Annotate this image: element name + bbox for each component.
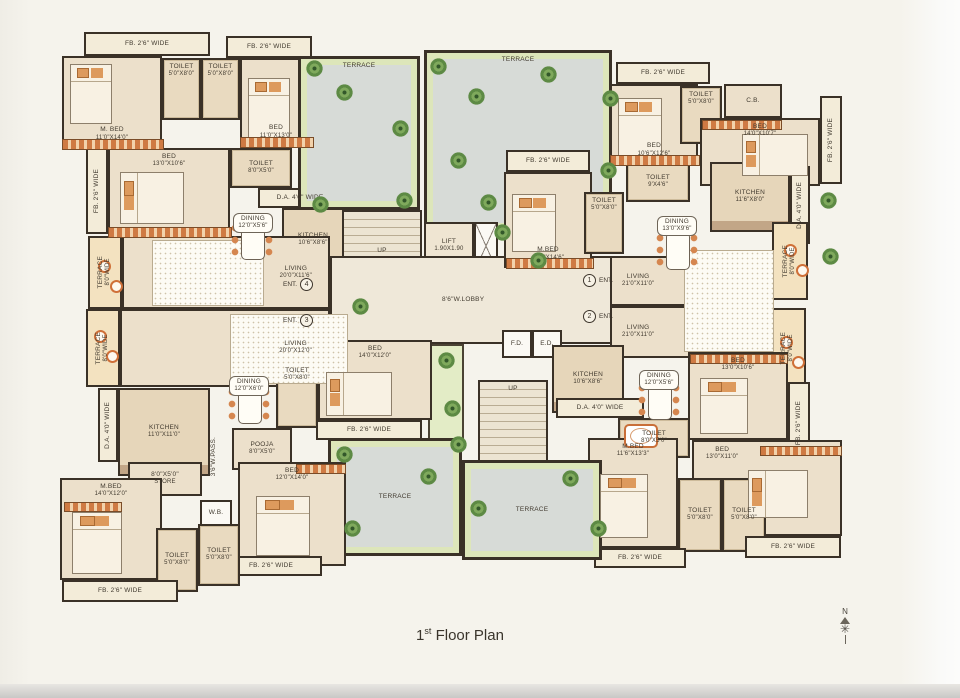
terrace-label: TERRACE bbox=[343, 62, 375, 70]
staircase: UP bbox=[478, 380, 548, 472]
terrace-side: TERRACE8'0"WIDE bbox=[86, 309, 120, 387]
paper-edge bbox=[0, 684, 960, 698]
entrance-marker: ENT.3 bbox=[283, 314, 313, 327]
bedroom-label: BED13'0"X10'6" bbox=[722, 357, 755, 373]
fb-balcony-label: FB. 2'6" WIDE bbox=[93, 169, 101, 213]
fb-balcony-label: FB. 2'6" WIDE bbox=[526, 157, 570, 165]
compass-stem bbox=[845, 635, 846, 644]
plant-icon bbox=[392, 120, 409, 137]
toilet-label: TOILET5'0"X8'0" bbox=[591, 197, 617, 213]
entrance-number: 1 bbox=[583, 274, 596, 287]
staircase-label: UP bbox=[508, 385, 517, 393]
fb-balcony: FB. 2'6" WIDE bbox=[84, 32, 210, 56]
entrance-label: ENT. bbox=[283, 317, 297, 324]
toilet-label: TOILET5'0"X8'0" bbox=[208, 63, 234, 79]
plant-icon bbox=[396, 192, 413, 209]
store-label: 8'0"X5'0"STORE bbox=[151, 471, 179, 487]
wardrobe-icon bbox=[760, 446, 842, 456]
terrace-side: TERRACE8'0"WIDE bbox=[88, 236, 122, 309]
plant-icon bbox=[820, 192, 837, 209]
fb-balcony-label: FB. 2'6" WIDE bbox=[247, 43, 291, 51]
living-room-label: LIVING20'0"X12'0" bbox=[279, 340, 312, 356]
plant-icon bbox=[480, 194, 497, 211]
lobby-label: 8'6"W.LOBBY bbox=[442, 296, 484, 304]
toilet-label: TOILET5'0"X8'0" bbox=[731, 507, 757, 523]
living-room-label: LIVING21'0"X11'0" bbox=[622, 273, 654, 289]
fb-balcony-label: FB. 2'6" WIDE bbox=[827, 118, 835, 162]
dining-label: DINING12'0"X5'6" bbox=[233, 213, 272, 233]
terrace-label: TERRACE bbox=[516, 506, 548, 514]
fb-balcony-label: FB. 2'6" WIDE bbox=[125, 40, 169, 48]
kitchen-label: KITCHEN11'6"X8'0" bbox=[735, 189, 765, 205]
entrance-number: 2 bbox=[583, 310, 596, 323]
compass-rose: N ✳ bbox=[830, 608, 860, 644]
toilet-label: TOILET5'0"X8'0" bbox=[688, 91, 714, 107]
living-room-label: LIVING21'0"X11'0" bbox=[622, 324, 654, 340]
plant-icon bbox=[450, 436, 467, 453]
fb-balcony: FB. 2'6" WIDE bbox=[745, 536, 841, 558]
fire-duct-label: F.D. bbox=[511, 340, 523, 348]
bed-icon bbox=[120, 172, 184, 224]
dining-label: DINING13'0"X9'6" bbox=[657, 216, 696, 236]
entrance-marker: 2ENT. bbox=[583, 310, 613, 323]
fb-balcony: FB. 2'6" WIDE bbox=[62, 580, 178, 602]
plant-icon bbox=[420, 468, 437, 485]
fb-balcony-label: FB. 2'6" WIDE bbox=[98, 587, 142, 595]
compass-star-icon: ✳ bbox=[830, 624, 860, 635]
terrace-side-label: TERRACE8'0"WIDE bbox=[95, 332, 111, 364]
master-bedroom-label: M.BED11'6"X13'3" bbox=[617, 443, 649, 459]
fb-balcony-label: FB. 2'6" WIDE bbox=[771, 543, 815, 551]
entrance-label: ENT. bbox=[283, 281, 297, 288]
bed-icon bbox=[512, 194, 556, 252]
passage: 3'6"W.PASS. bbox=[202, 418, 226, 496]
fb-balcony: FB. 2'6" WIDE bbox=[86, 148, 108, 234]
master-bedroom-label: M. BED11'0"X14'0" bbox=[96, 126, 128, 142]
toilet-label: TOILET5'0"X8'0" bbox=[206, 547, 232, 563]
terrace-side-label: TERRACE8'0"WIDE bbox=[780, 332, 796, 364]
toilet: TOILET5'0"X8'0" bbox=[584, 192, 624, 254]
bed-icon bbox=[600, 474, 648, 538]
passage-label: 3'6"W.PASS. bbox=[210, 437, 218, 476]
wash-basin-label: W.B. bbox=[209, 509, 224, 517]
plant-icon bbox=[562, 470, 579, 487]
plant-icon bbox=[438, 352, 455, 369]
plant-icon bbox=[344, 520, 361, 537]
bed-icon bbox=[70, 64, 112, 124]
toilet: TOILET9'X4'6" bbox=[626, 162, 690, 202]
terrace-side: TERRACE8'0"WIDE bbox=[772, 222, 808, 300]
toilet: TOILET5'0"X8'0" bbox=[162, 58, 201, 120]
toilet-label: TOILET5'0"X8'0" bbox=[284, 367, 310, 383]
bedroom-label: BED12'0"X14'0" bbox=[276, 467, 309, 483]
kitchen-label: KITCHEN11'0"X11'0" bbox=[148, 424, 180, 440]
duct-area: D.A. 4'0" WIDE bbox=[98, 388, 118, 462]
toilet: TOILET5'0"X8'0" bbox=[678, 478, 722, 552]
plant-icon bbox=[822, 248, 839, 265]
toilet: TOILET5'0"X8'0" bbox=[201, 58, 240, 120]
bed-icon bbox=[742, 134, 808, 176]
toilet: TOILET5'0"X8'0" bbox=[198, 524, 240, 586]
toilet-label: TOILET5'0"X8'0" bbox=[169, 63, 195, 79]
bed-icon bbox=[700, 378, 748, 434]
dining-table-icon bbox=[654, 230, 700, 270]
cupboard: C.B. bbox=[724, 84, 782, 118]
bedroom-label: BED14'0"X10'7" bbox=[744, 123, 777, 139]
plant-icon bbox=[336, 84, 353, 101]
plant-icon bbox=[602, 90, 619, 107]
bed-icon bbox=[256, 496, 310, 556]
duct-area: D.A. 4'0" WIDE bbox=[556, 398, 644, 418]
kitchen-label: KITCHEN10'6"X8'6" bbox=[573, 371, 603, 387]
bedroom-label: BED13'0"X11'0" bbox=[706, 446, 738, 462]
fb-balcony-label: FB. 2'6" WIDE bbox=[249, 562, 293, 570]
electrical-duct-label: E.D. bbox=[540, 340, 553, 348]
bedroom-label: BED13'0"X10'6" bbox=[153, 153, 186, 169]
entrance-marker: 1ENT. bbox=[583, 274, 613, 287]
plant-icon bbox=[494, 224, 511, 241]
fb-balcony: FB. 2'6" WIDE bbox=[226, 36, 312, 58]
entrance-marker: ENT.4 bbox=[283, 278, 313, 291]
pooja-room-label: POOJA8'0"X5'0" bbox=[249, 441, 275, 457]
kitchen-label: KITCHEN10'6"X8'6" bbox=[298, 232, 328, 248]
plan-title-text: Floor Plan bbox=[431, 627, 504, 644]
fb-balcony: FB. 2'6" WIDE bbox=[616, 62, 710, 84]
toilet: TOILET8'0"X5'0" bbox=[230, 148, 292, 188]
floor-plan: FB. 2'6" WIDEFB. 2'6" WIDEM. BED11'0"X14… bbox=[0, 0, 960, 698]
plan-title: 1st Floor Plan bbox=[350, 626, 570, 644]
dining-label: DINING12'0"X6'0" bbox=[229, 376, 268, 396]
entrance-label: ENT. bbox=[599, 313, 613, 320]
plant-icon bbox=[352, 298, 369, 315]
fb-balcony: FB. 2'6" WIDE bbox=[594, 548, 686, 568]
terrace-label: TERRACE bbox=[379, 493, 411, 501]
bed-icon bbox=[748, 470, 808, 518]
plant-icon bbox=[540, 66, 557, 83]
bedroom-label: BED10'6"X12'6" bbox=[638, 142, 671, 158]
bed-icon bbox=[326, 372, 392, 416]
duct-area-label: D.A. 4'0" WIDE bbox=[577, 404, 624, 412]
entrance-number: 4 bbox=[300, 278, 313, 291]
fb-balcony-label: FB. 2'6" WIDE bbox=[347, 426, 391, 434]
entrance-number: 3 bbox=[300, 314, 313, 327]
staircase-label: UP bbox=[377, 247, 386, 255]
wardrobe-icon bbox=[64, 502, 122, 512]
plant-icon bbox=[600, 162, 617, 179]
wardrobe-icon bbox=[108, 227, 232, 238]
fb-balcony: FB. 2'6" WIDE bbox=[506, 150, 590, 172]
terrace-label: TERRACE bbox=[502, 56, 534, 64]
compass-north-label: N bbox=[830, 608, 860, 616]
plant-icon bbox=[336, 446, 353, 463]
entrance-label: ENT. bbox=[599, 277, 613, 284]
bed-icon bbox=[72, 512, 122, 574]
wash-basin: W.B. bbox=[200, 500, 232, 526]
bedroom-label: BED14'0"X12'0" bbox=[359, 345, 392, 361]
toilet-label: TOILET9'X4'6" bbox=[646, 174, 670, 190]
toilet-label: TOILET5'0"X8'0" bbox=[687, 507, 713, 523]
plant-icon bbox=[590, 520, 607, 537]
fb-balcony-label: FB. 2'6" WIDE bbox=[618, 554, 662, 562]
plant-icon bbox=[470, 500, 487, 517]
plant-icon bbox=[430, 58, 447, 75]
plant-icon bbox=[468, 88, 485, 105]
master-bedroom-label: M.BED14'0"X12'0" bbox=[95, 483, 128, 499]
plant-icon bbox=[444, 400, 461, 417]
bedroom-label: BED11'0"X13'0" bbox=[260, 124, 292, 140]
duct-area-label: D.A. 4'0" WIDE bbox=[796, 182, 804, 229]
fb-balcony-label: FB. 2'6" WIDE bbox=[641, 69, 685, 77]
plant-icon bbox=[450, 152, 467, 169]
plant-icon bbox=[306, 60, 323, 77]
lift-label: LIFT1.90X1.90 bbox=[434, 238, 463, 254]
cupboard-label: C.B. bbox=[746, 97, 759, 105]
plant-icon bbox=[312, 196, 329, 213]
plant-icon bbox=[530, 252, 547, 269]
dining-label: DINING12'0"X5'6" bbox=[639, 370, 678, 390]
toilet-label: TOILET5'0"X8'0" bbox=[164, 552, 190, 568]
chair-icon bbox=[796, 264, 809, 277]
fire-duct: F.D. bbox=[502, 330, 532, 358]
terrace-side-label: TERRACE8'0"WIDE bbox=[782, 245, 798, 277]
duct-area-label: D.A. 4'0" WIDE bbox=[104, 402, 112, 449]
toilet-label: TOILET8'0"X5'0" bbox=[248, 160, 274, 176]
fb-balcony: FB. 2'6" WIDE bbox=[316, 420, 422, 440]
fb-balcony: FB. 2'6" WIDE bbox=[820, 96, 842, 184]
terrace-side-label: TERRACE8'0"WIDE bbox=[97, 256, 113, 288]
fb-balcony-label: FB. 2'6" WIDE bbox=[795, 401, 803, 445]
